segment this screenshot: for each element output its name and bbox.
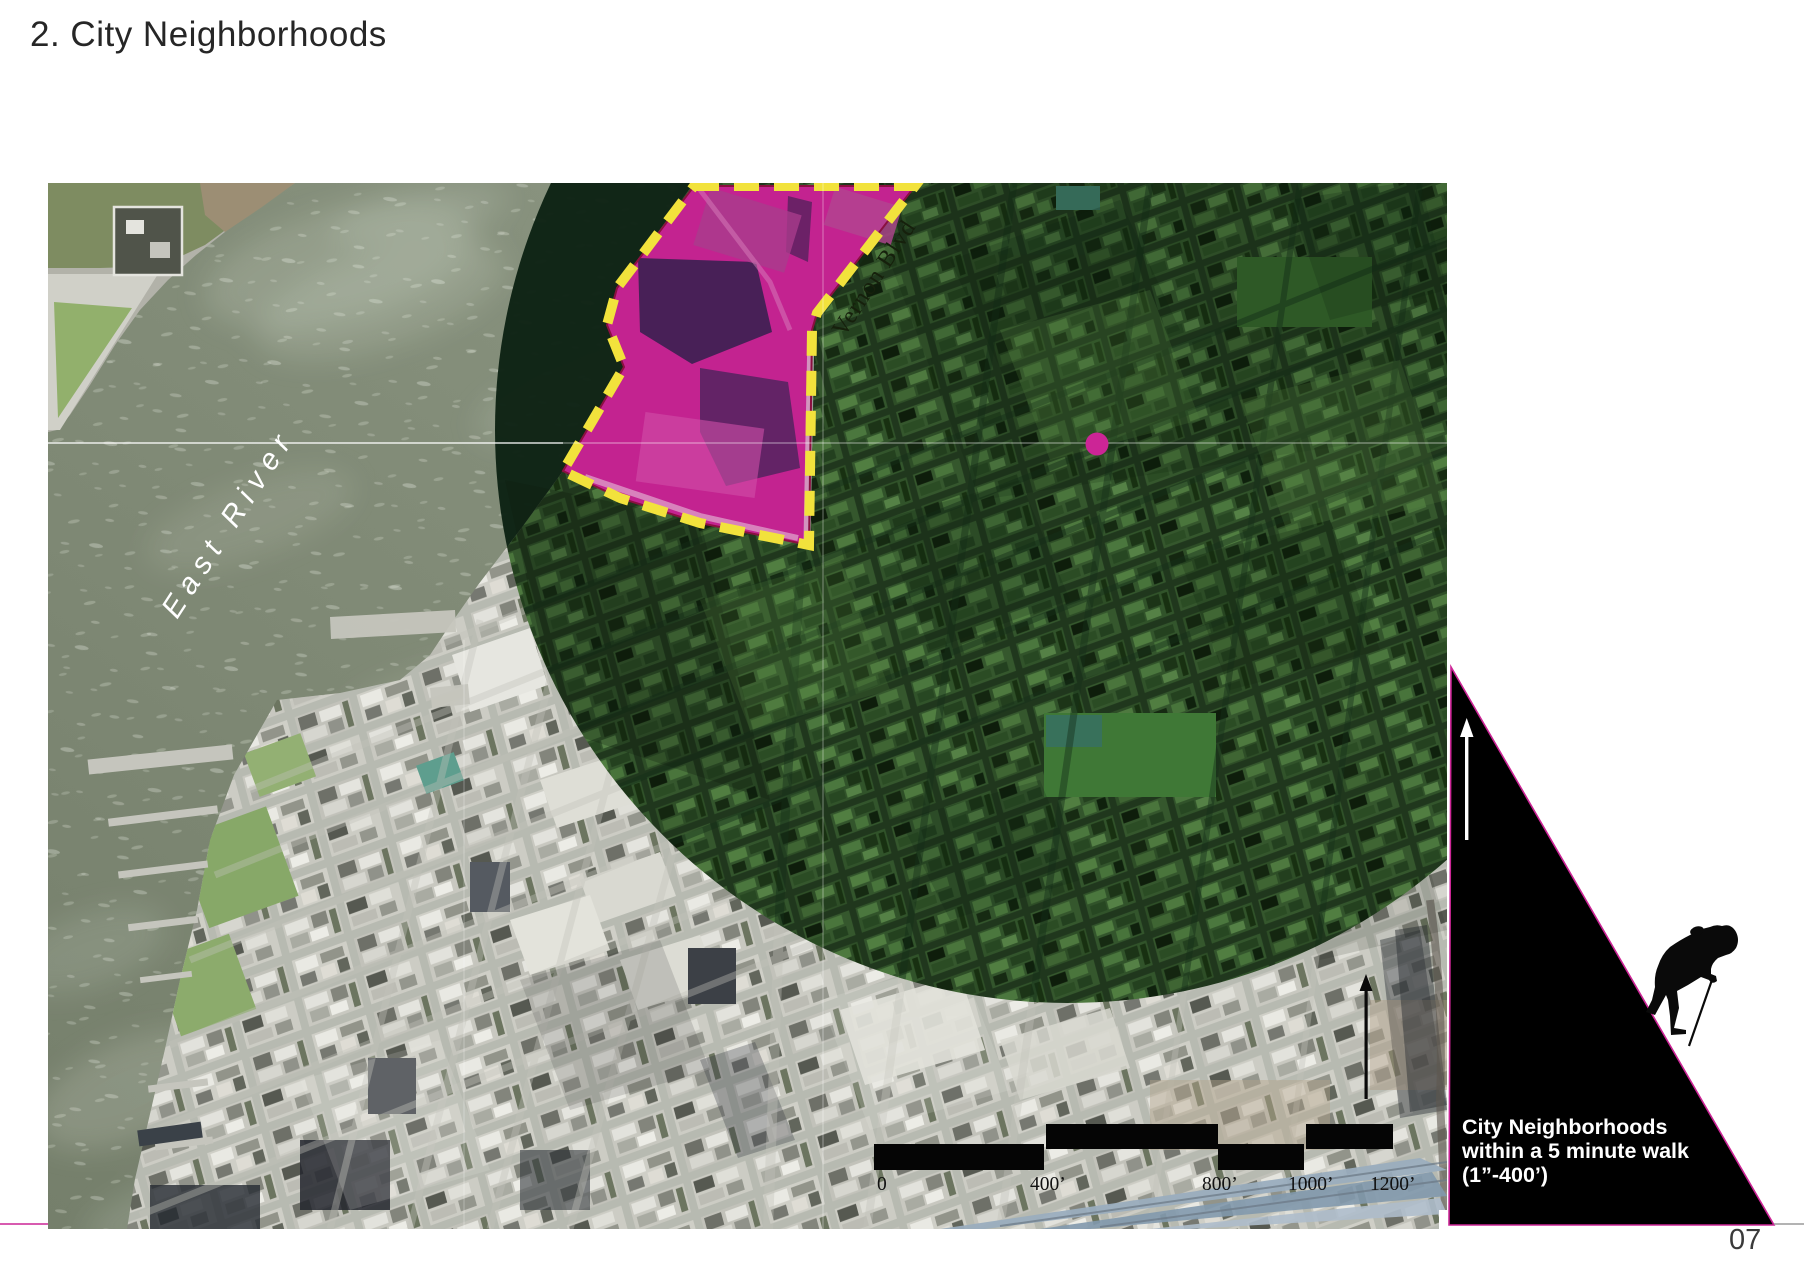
svg-text:City Neighborhoods: City Neighborhoods (1462, 1115, 1667, 1139)
svg-text:(1”-400’): (1”-400’) (1462, 1163, 1548, 1187)
svg-text:within a 5 minute walk: within a 5 minute walk (1461, 1139, 1689, 1163)
